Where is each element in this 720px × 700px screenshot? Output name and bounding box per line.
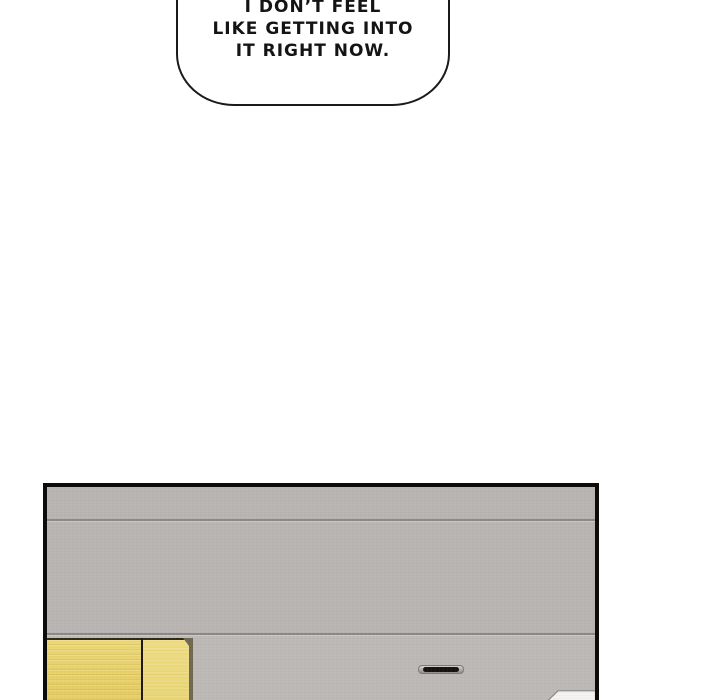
wall-seam-upper — [47, 519, 595, 521]
comic-panel — [43, 483, 599, 700]
handle-slot-icon — [423, 667, 459, 672]
speech-bubble: I DON’T FEEL LIKE GETTING INTO IT RIGHT … — [176, 0, 450, 106]
bubble-line-1: I DON’T FEEL — [178, 0, 448, 18]
paper-corner — [548, 690, 595, 700]
cabinet-door-right — [143, 638, 189, 700]
yellow-cabinet — [47, 638, 193, 700]
cabinet-divider — [141, 638, 143, 700]
bubble-line-2: LIKE GETTING INTO — [178, 18, 448, 40]
panel-interior — [47, 487, 595, 700]
bubble-line-3: IT RIGHT NOW. — [178, 40, 448, 62]
speech-bubble-text: I DON’T FEEL LIKE GETTING INTO IT RIGHT … — [178, 0, 448, 62]
recessed-handle — [418, 665, 464, 674]
cabinet-door-left — [47, 638, 141, 700]
wall-seam-lower — [47, 633, 595, 635]
comic-page: I DON’T FEEL LIKE GETTING INTO IT RIGHT … — [0, 0, 720, 700]
